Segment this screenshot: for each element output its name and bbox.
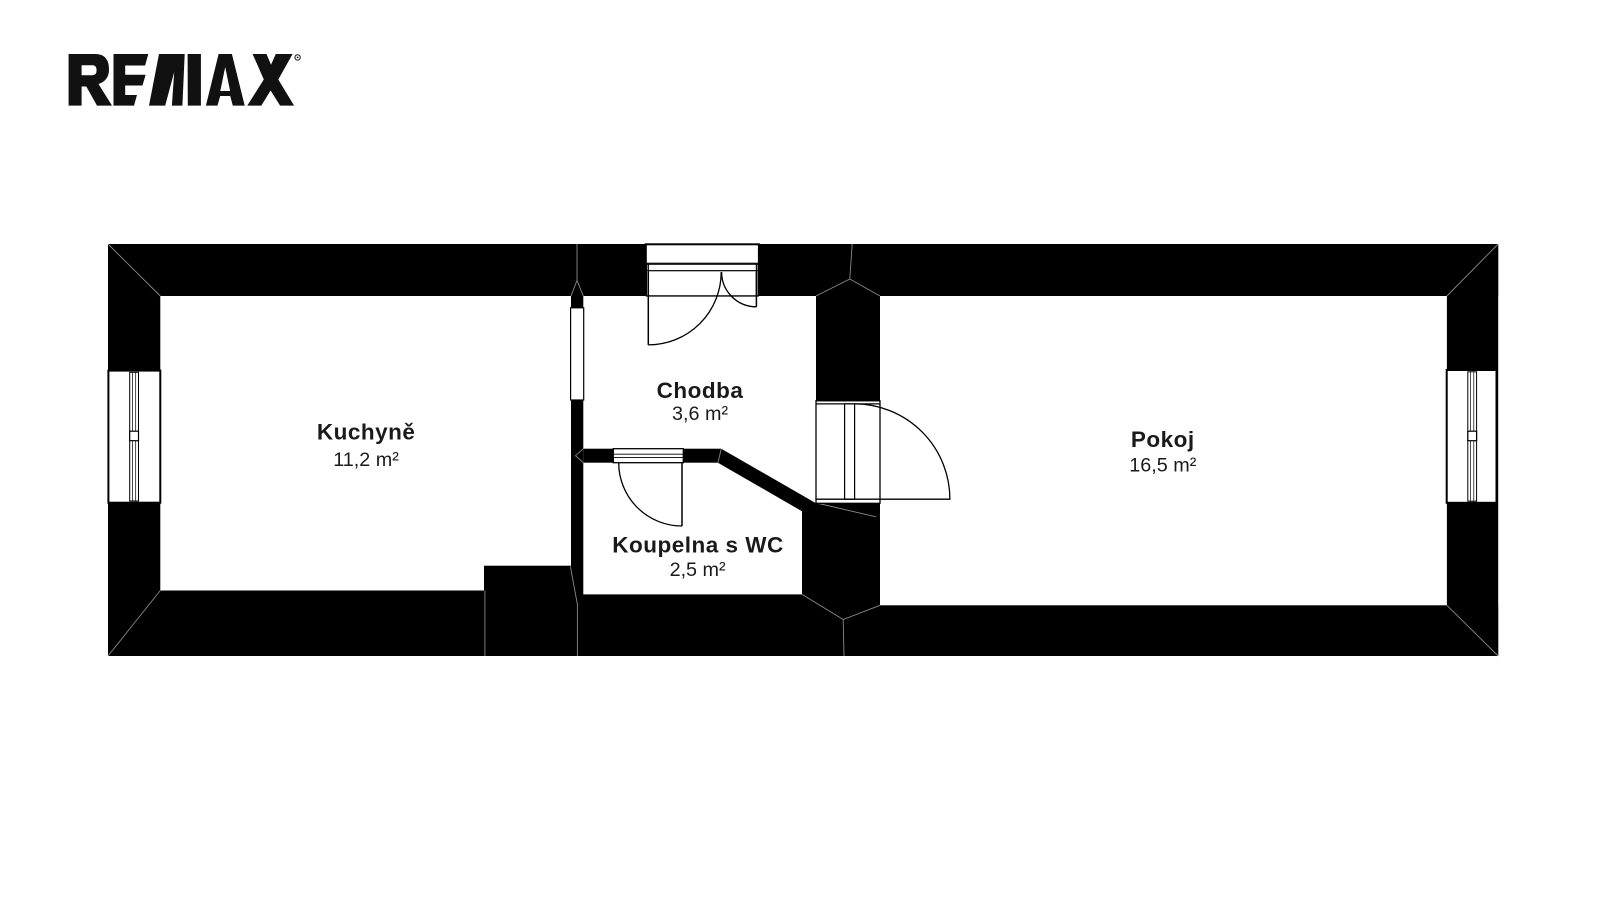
svg-text:11,2 m²: 11,2 m² [333, 449, 399, 471]
svg-text:2,5 m²: 2,5 m² [670, 559, 726, 581]
svg-text:Pokoj: Pokoj [1131, 427, 1195, 452]
svg-text:Kuchyně: Kuchyně [317, 420, 416, 445]
svg-text:Koupelna s WC: Koupelna s WC [612, 533, 784, 558]
svg-text:Chodba: Chodba [657, 378, 744, 403]
svg-text:16,5 m²: 16,5 m² [1129, 455, 1196, 477]
svg-text:3,6 m²: 3,6 m² [672, 403, 728, 425]
